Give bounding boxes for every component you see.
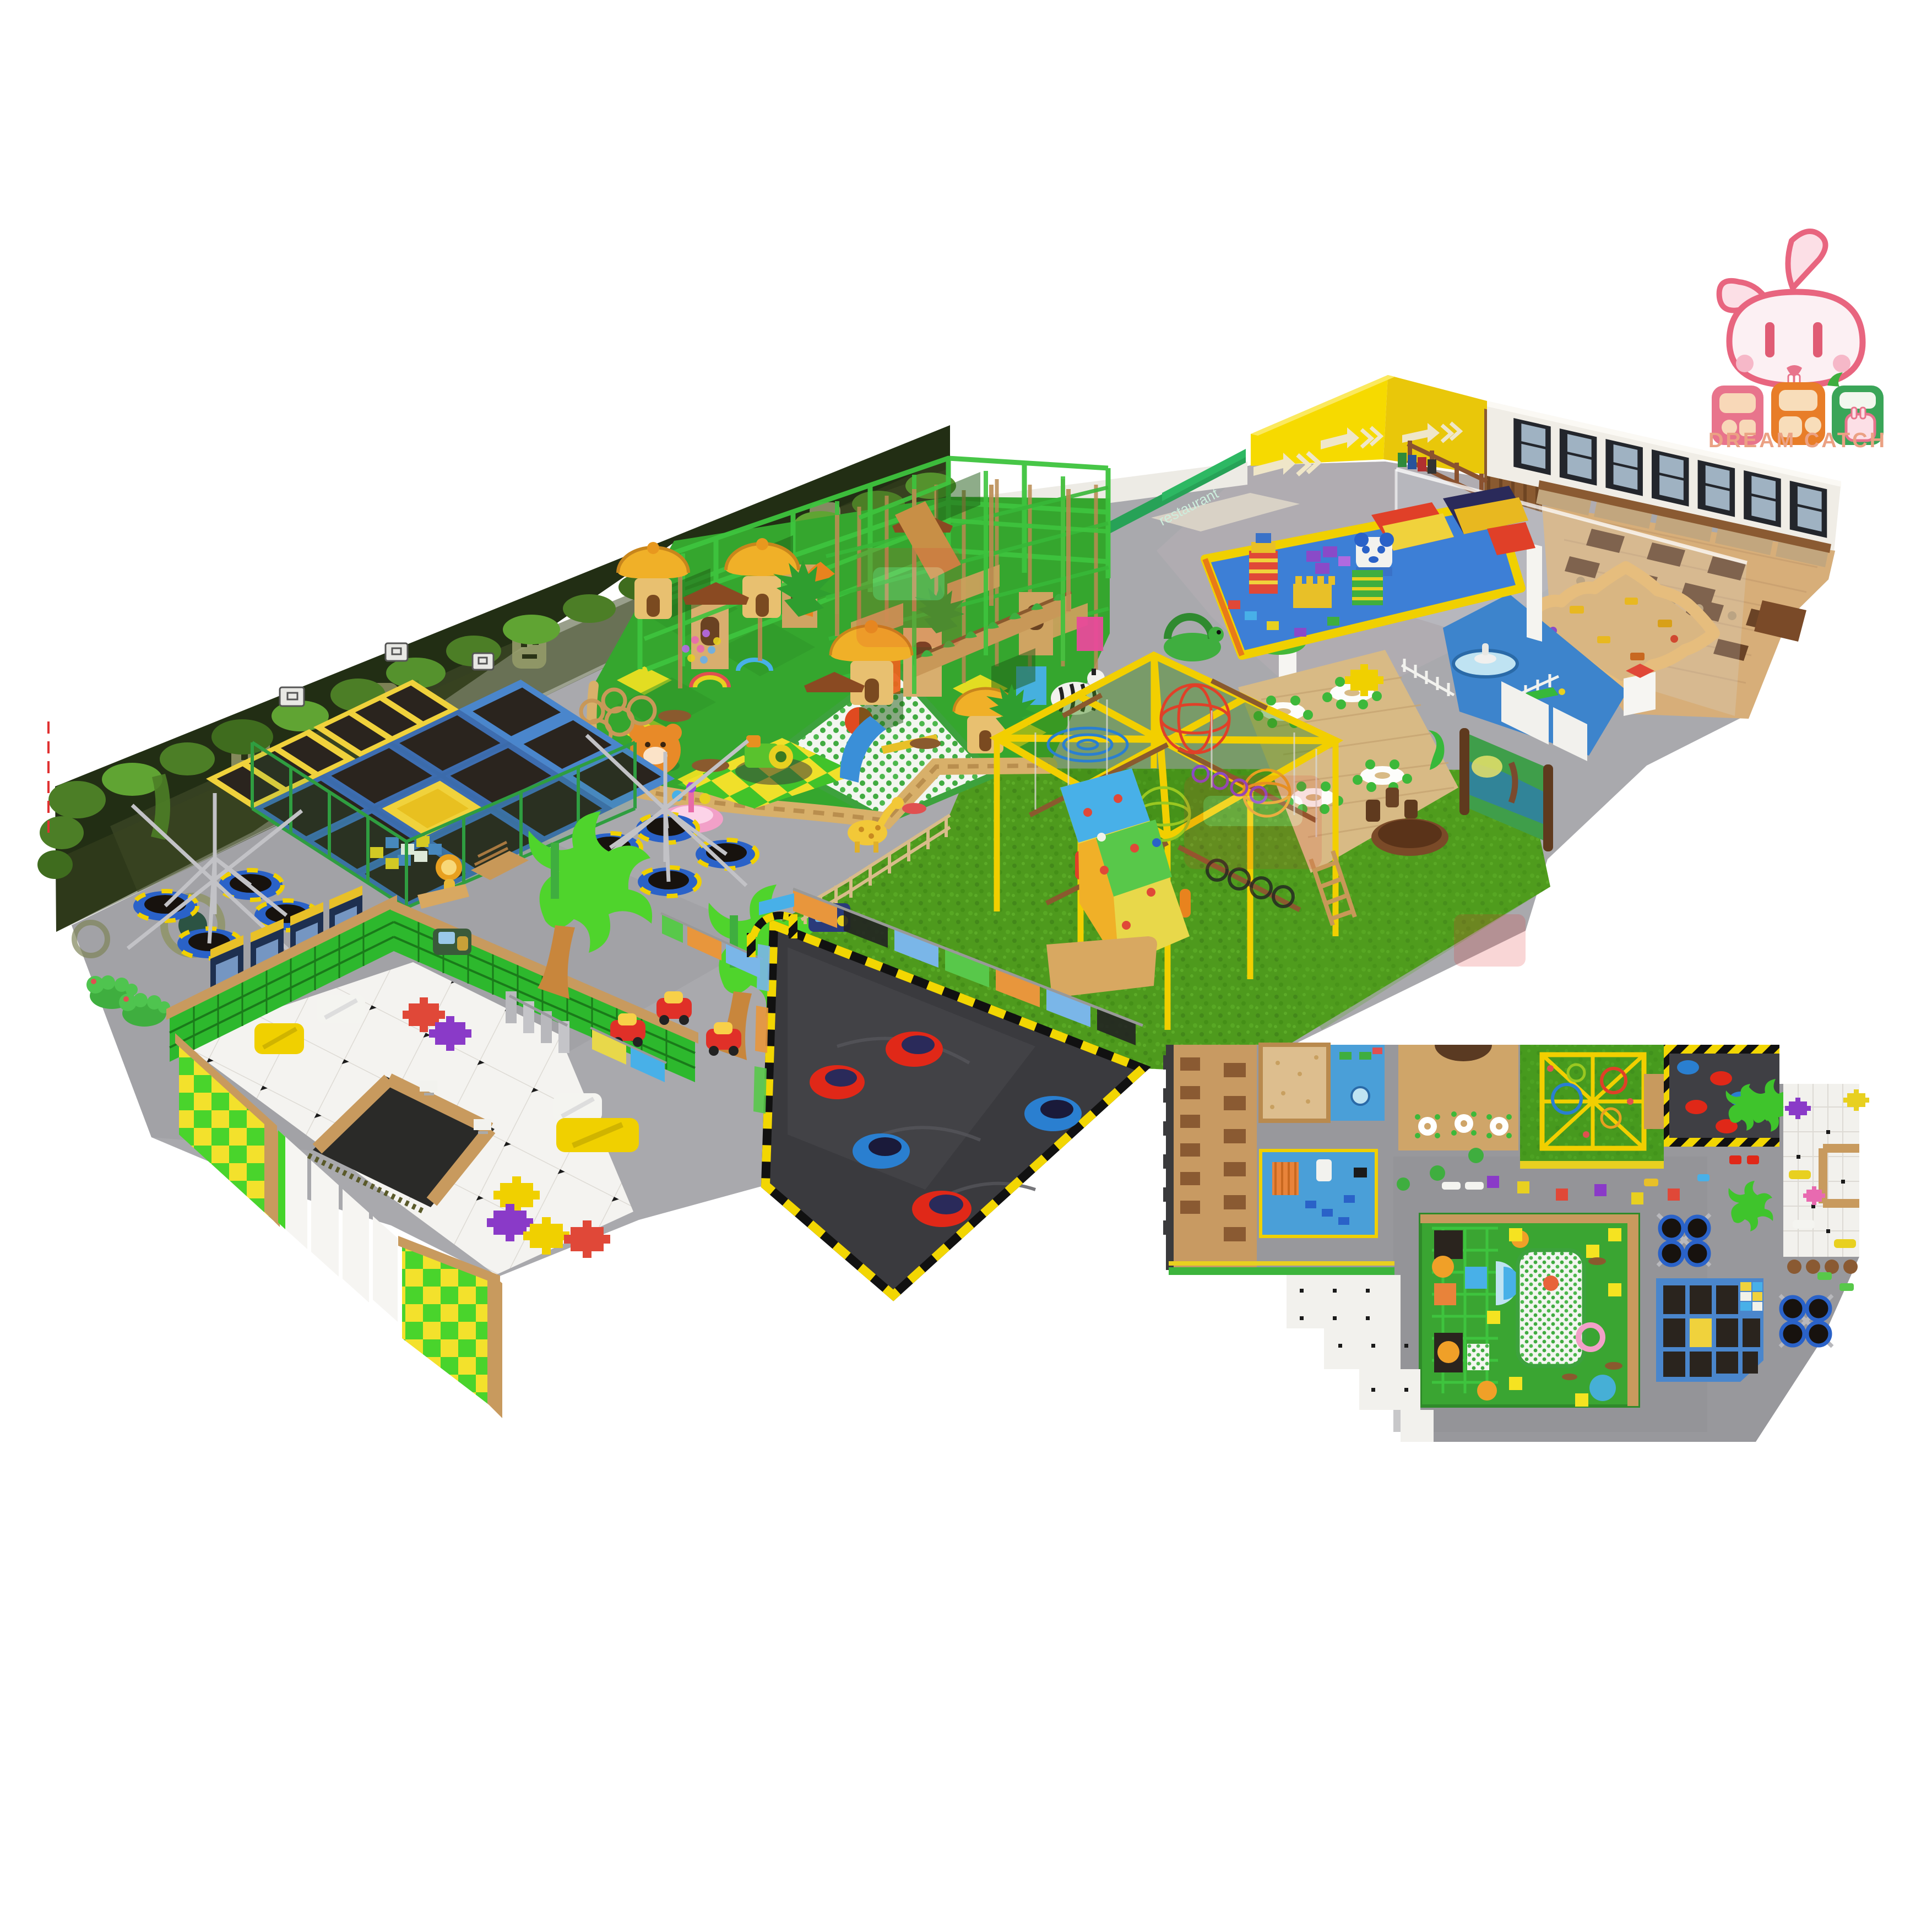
svg-text:DREAM CATCH: DREAM CATCH <box>1708 429 1887 452</box>
